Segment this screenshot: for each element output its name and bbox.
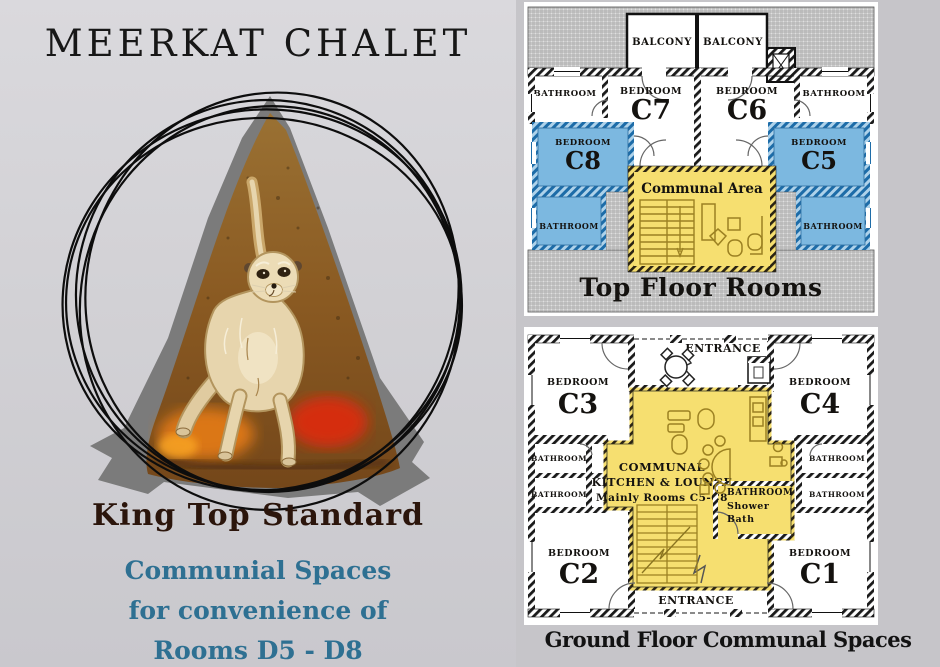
communal-area-label: Communal Area [641, 181, 763, 197]
top-floor-caption: Top Floor Rooms [579, 273, 822, 302]
subheading-line-3: Rooms D5 - D8 [0, 631, 516, 667]
bedroom-c2-label: BEDROOM [548, 548, 610, 559]
flyer-page: MEERKAT CHALET [0, 0, 940, 667]
communal-line1: COMMUNAL [619, 460, 705, 474]
ground-floor-plan: COMMUNAL KITCHEN & LOUNGE Mainly Rooms C… [524, 327, 878, 625]
shower-line2: Bath [727, 514, 754, 525]
closet-icon [748, 357, 770, 383]
meerkat-artwork [28, 78, 488, 516]
bedroom-c1-label: BEDROOM [789, 548, 851, 559]
communal-area-room: Communal Area [628, 166, 776, 272]
balcony-right-label: BALCONY [703, 37, 763, 48]
balcony-left-label: BALCONY [632, 37, 692, 48]
shaft-box-icon [767, 48, 795, 82]
bedroom-c2-code: C2 [559, 559, 599, 590]
door-arc [640, 140, 666, 166]
bathroom-left-1-label: BATHROOM [531, 454, 587, 463]
bathroom-mid-right-room: BATHROOM [796, 192, 870, 250]
page-title: MEERKAT CHALET [0, 22, 516, 65]
orange-glow-bright [158, 434, 198, 458]
left-panel: MEERKAT CHALET [0, 0, 516, 667]
subheading-line-2: for convenience of [0, 591, 516, 631]
bedroom-c6-code: C6 [727, 95, 767, 126]
bathroom-mid-left-label: BATHROOM [539, 221, 598, 231]
shower-line1: Shower [727, 501, 770, 512]
door-arc [774, 343, 800, 369]
bathroom-right-2-label: BATHROOM [809, 490, 865, 499]
bathroom-mid-left-room: BATHROOM [532, 192, 606, 250]
bedroom-c8-code: C8 [565, 146, 601, 175]
bedroom-c3-code: C3 [558, 389, 598, 420]
bedroom-c4-label: BEDROOM [789, 377, 851, 388]
door-arc [736, 140, 762, 166]
bathroom-top-left-label: BATHROOM [534, 89, 597, 99]
top-floor-plan-card: BALCONY BALCONY [524, 2, 878, 316]
subheading-line-1: Communial Spaces [0, 551, 516, 591]
bedroom-c7-code: C7 [631, 95, 671, 126]
bedroom-c8-room: BEDROOM C8 [532, 122, 634, 192]
bedroom-c1-code: C1 [800, 559, 840, 590]
bedroom-c5-room: BEDROOM C5 [768, 122, 870, 192]
ground-floor-plan-card: COMMUNAL KITCHEN & LOUNGE Mainly Rooms C… [524, 327, 878, 625]
subheading-block: Communial Spaces for convenience of Room… [0, 551, 516, 667]
roof-strip-left [606, 192, 628, 250]
red-glow [288, 396, 368, 448]
ground-floor-caption: Ground Floor Communal Spaces [516, 627, 940, 652]
entrance-table-icon [660, 348, 694, 386]
shower-bathroom-label: BATHROOM [727, 488, 793, 498]
bathroom-mid-right-label: BATHROOM [803, 221, 862, 231]
bedroom-c3-label: BEDROOM [547, 377, 609, 388]
top-floor-plan: BALCONY BALCONY [524, 2, 878, 316]
bathroom-left-2-label: BATHROOM [531, 490, 587, 499]
bedroom-c5-code: C5 [801, 146, 837, 175]
right-panel: BALCONY BALCONY [516, 0, 940, 667]
bedroom-c4-code: C4 [800, 389, 840, 420]
bathroom-right-1-label: BATHROOM [809, 454, 865, 463]
room-heading: King Top Standard [0, 498, 516, 533]
entrance-top-label: ENTRANCE [685, 342, 761, 355]
door-arc [602, 343, 628, 369]
entrance-bottom-label: ENTRANCE [658, 594, 734, 607]
roof-strip-right [774, 192, 796, 250]
bathroom-top-right-label: BATHROOM [803, 89, 866, 99]
